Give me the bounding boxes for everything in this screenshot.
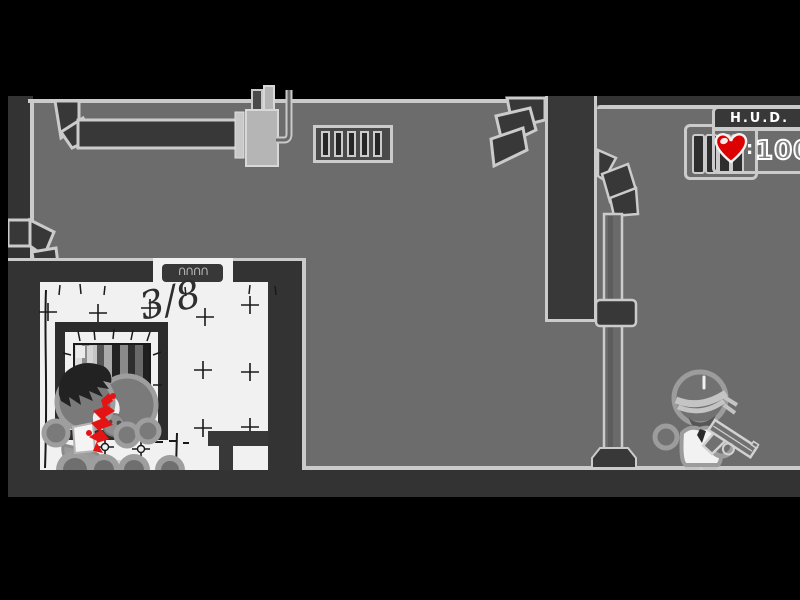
- shoulder-ring: [44, 421, 68, 445]
- hud-separator: :: [746, 138, 753, 159]
- pipe-bracket: [596, 300, 636, 326]
- bandana-knot: [724, 397, 737, 413]
- junction-box: [246, 110, 278, 166]
- bench: [208, 431, 268, 446]
- pipe-shade: [608, 216, 613, 458]
- wall-fraction-text: 3/8: [135, 271, 205, 328]
- vent-slat: [360, 131, 369, 157]
- game-viewport[interactable]: ∩∩∩∩ 3/8: [0, 0, 800, 600]
- cross-ring: [102, 444, 109, 451]
- shoulder-ring: [116, 424, 138, 446]
- heart-icon: [712, 129, 750, 167]
- white-room-art: 3/8: [35, 255, 310, 480]
- wall-vent-grate: [313, 125, 393, 163]
- vent-slat: [373, 131, 382, 157]
- arm-ring: [655, 426, 677, 448]
- duct-elbow-segment: [491, 128, 527, 166]
- hud-health-value: 100: [755, 136, 800, 166]
- blood-drop: [110, 393, 116, 399]
- horizontal-duct: [78, 120, 238, 148]
- hud-title: H.U.D.: [712, 106, 800, 130]
- enemy-character[interactable]: [640, 355, 795, 473]
- sketch-dashes: [155, 441, 189, 443]
- blood-drop: [86, 430, 92, 436]
- vent-slat: [347, 131, 356, 157]
- vent-slat: [321, 131, 330, 157]
- shoulder-ring: [137, 420, 159, 442]
- cross-ring: [138, 446, 145, 453]
- bench-leg: [219, 446, 233, 470]
- vent-slat: [334, 131, 343, 157]
- right-room-ceiling-band: [597, 96, 800, 105]
- duct-elbow-segment: [8, 220, 32, 246]
- duct-flange: [235, 112, 244, 158]
- ammo-slot: [692, 134, 705, 174]
- ceiling-duct-assembly: [8, 82, 308, 177]
- pipe-base: [592, 448, 636, 468]
